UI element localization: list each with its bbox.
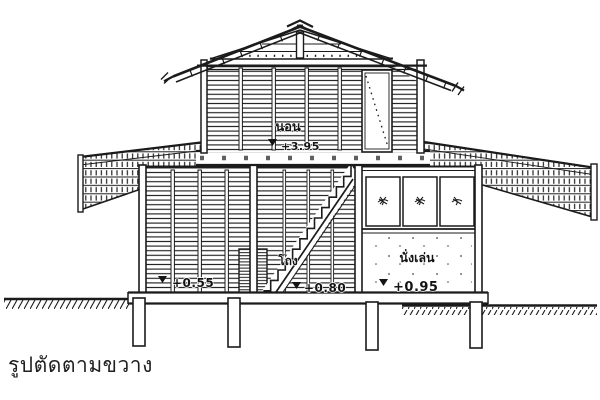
wall-mullion [331,170,334,292]
wall-mullion [171,170,174,292]
wall-post [475,165,482,295]
wall-mullion [198,170,201,292]
living-label: นั่งเล่น [399,249,435,265]
drawing-canvas: นอน +3.95 +0.55 โถง +0.80 นั่งเล่น +0.95… [0,0,600,400]
drawing-caption: รูปตัดตามขวาง [8,349,153,382]
living-level: +0.95 [393,280,438,295]
stilt [133,298,145,346]
left-awning-fascia [78,155,83,212]
living-room-wall [360,166,480,294]
wall-mullion [338,68,341,150]
bedroom-level: +3.95 [281,140,320,153]
wall-post [355,165,362,295]
hall-level: +0.80 [304,281,346,295]
wall-mullion [225,170,228,292]
terrace-level: +0.55 [172,276,214,290]
wall-mullion [305,68,308,150]
section-sketch: นอน +3.95 +0.55 โถง +0.80 นั่งเล่น +0.95 [0,0,600,400]
ground-line-left [4,299,130,309]
stilt [366,302,378,350]
wall-mullion [272,68,275,150]
ground-line-right [402,306,597,316]
ridge-post [297,32,304,58]
bedroom-label: นอน [275,120,301,135]
bedroom-door-panel [362,70,392,152]
gable-panel [210,30,392,59]
wall-post [139,165,146,295]
wall-post [201,60,207,153]
wall-post [250,165,257,295]
right-awning-fascia [591,164,597,220]
hall-label: โถง [277,253,298,268]
stilt [228,298,240,347]
stilt [470,302,482,348]
wall-mullion [239,68,242,150]
